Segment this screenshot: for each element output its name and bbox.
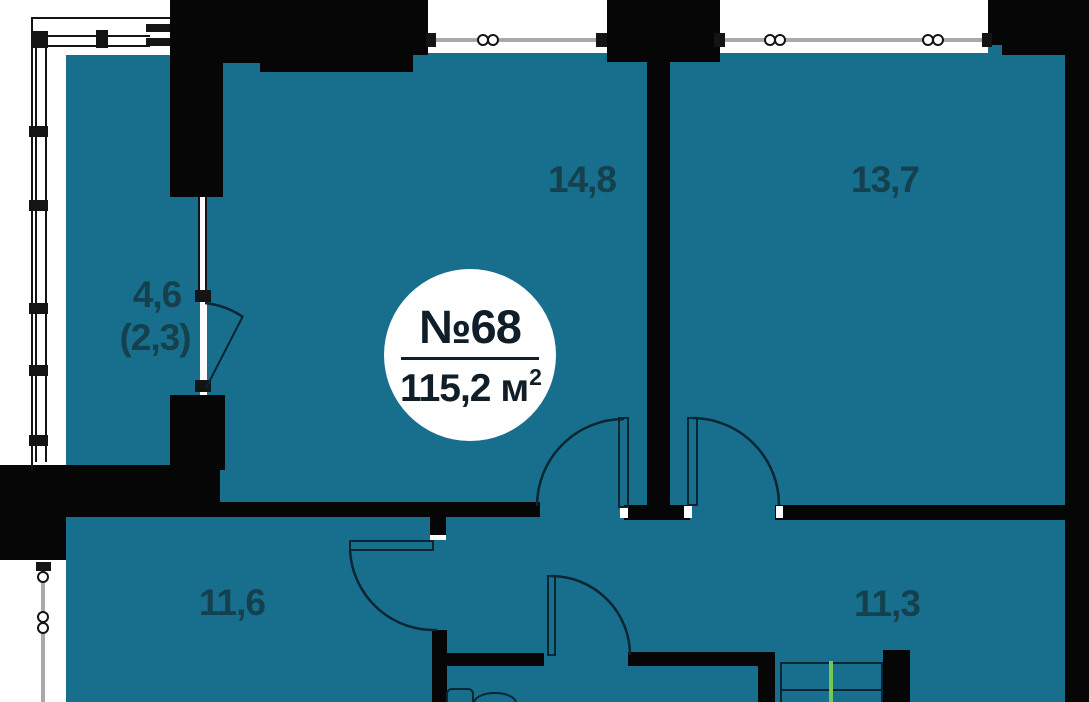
exterior-strip	[428, 0, 607, 53]
window-end-cap	[714, 33, 725, 47]
glazing-tick	[29, 126, 48, 137]
window-end-cap	[596, 33, 607, 47]
glazing-tick	[96, 30, 108, 48]
window-connector	[38, 612, 48, 622]
wall-top-left-step	[260, 53, 413, 72]
unit-badge-divider	[401, 357, 539, 360]
wall-mid-center	[624, 505, 690, 520]
room-area-label-13-7: 13,7	[851, 159, 919, 201]
glazing-tick	[29, 200, 48, 211]
door-threshold-left	[540, 502, 624, 517]
room-area-label-11-3: 11,3	[854, 583, 920, 625]
window-end-cap	[36, 562, 51, 571]
balcony-area-label: 4,6	[133, 274, 181, 316]
wall-top-left-end	[413, 0, 428, 55]
unit-number: №68	[419, 303, 521, 350]
wall-central-vertical	[647, 55, 670, 505]
window-bottom-left	[36, 562, 51, 702]
wall-mid-left	[220, 502, 540, 517]
wall-balcony-vertical	[170, 0, 223, 197]
wall-top-right-step	[1002, 45, 1065, 55]
window-end-cap	[982, 33, 992, 47]
glazing-tick	[29, 435, 48, 446]
wall-right-vertical	[1065, 40, 1089, 702]
window-end-cap	[426, 33, 436, 47]
glazing-jamb	[146, 38, 170, 46]
window-connector	[923, 35, 933, 45]
wall-top-middle-block	[607, 0, 720, 62]
unit-total-area: 115,2 м2	[400, 368, 540, 408]
wall-mid-right	[775, 505, 1067, 520]
floor-plan: 14,8 13,7 4,6 (2,3) 11,6 11,3 №68 115,2 …	[0, 0, 1089, 702]
room-14-8-fill	[207, 50, 647, 505]
jamb-mark	[684, 506, 692, 518]
wall-bath-right	[758, 652, 775, 702]
room-13-7-fill	[670, 45, 1065, 505]
window-connector	[38, 572, 48, 582]
glazing-tick	[29, 303, 48, 314]
exterior-strip	[720, 0, 988, 53]
door-threshold-right	[690, 505, 775, 520]
unit-badge: №68 115,2 м2	[384, 269, 556, 441]
wall-11-6-right	[432, 630, 447, 702]
unit-area-exponent: 2	[529, 364, 541, 390]
window-connector	[765, 35, 775, 45]
jamb-mark	[776, 506, 783, 518]
room-area-label-14-8: 14,8	[548, 159, 616, 201]
room-area-label-11-6: 11,6	[199, 582, 265, 624]
window-connector	[38, 623, 48, 633]
wall-bath-top-right	[628, 652, 775, 666]
wall-top-right-corner	[988, 0, 1089, 45]
unit-area-unit: м	[490, 367, 528, 410]
balcony-area-label-secondary: (2,3)	[119, 317, 190, 359]
wall-wardrobe-right	[883, 650, 910, 702]
window-connector	[933, 35, 943, 45]
unit-area-value: 115,2	[400, 367, 490, 410]
jamb-mark	[430, 535, 446, 540]
window-connector	[488, 35, 498, 45]
glazing-corner-knot	[31, 31, 48, 48]
glazing-jamb	[146, 24, 170, 32]
wall-bath-top-left	[447, 653, 544, 666]
window-connector	[775, 35, 785, 45]
window-connector	[478, 35, 488, 45]
glazing-tick	[29, 365, 48, 376]
wall-balcony-bottom	[170, 395, 225, 470]
wall-bottom-left-block	[0, 465, 66, 560]
hinge-knot	[195, 290, 211, 302]
